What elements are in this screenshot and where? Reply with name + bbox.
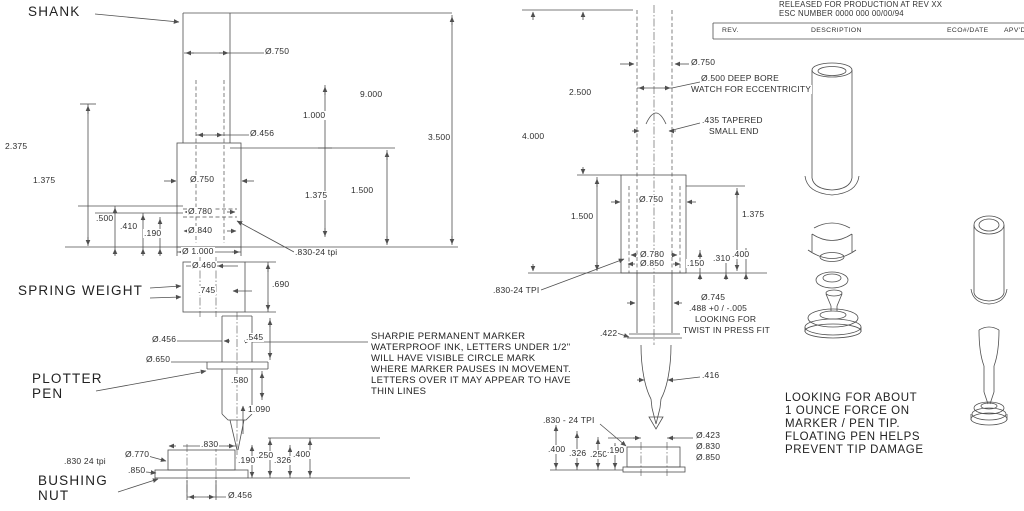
- sharpie-note-line6: THIN LINES: [371, 387, 426, 397]
- force-note-line1: LOOKING FOR ABOUT: [785, 392, 917, 405]
- release-note: RELEASED FOR PRODUCTION AT REV XX: [779, 0, 942, 9]
- dim-overall-9000: 9.000: [359, 90, 383, 99]
- mv-dim-745: Ø.745: [700, 293, 726, 302]
- mv-dim-150: .150: [686, 259, 705, 268]
- dim-bn-400: .400: [292, 450, 311, 459]
- dim-840: Ø.840: [187, 226, 213, 235]
- col-header-rev: REV.: [722, 27, 739, 34]
- dim-1090: 1.090: [247, 405, 271, 414]
- dim-bn-190: .190: [237, 456, 256, 465]
- dim-bn-850: .850: [127, 466, 146, 475]
- mv-dim-190b: .190: [606, 446, 625, 455]
- col-header-apvd: APV'D: [1004, 27, 1024, 34]
- mv-dim-423: Ø.423: [695, 431, 721, 440]
- mv-dim-400b: .400: [547, 445, 566, 454]
- thread-callout-shank: .830-24 tpi: [294, 248, 338, 257]
- mv-bore-note-line1: Ø.500 DEEP BORE: [700, 74, 780, 83]
- dim-780: Ø.780: [187, 207, 213, 216]
- spring-weight-label: SPRING WEIGHT: [18, 283, 143, 298]
- dim-750-mid: Ø.750: [189, 175, 215, 184]
- mv-thread-callout: .830-24 TPI: [492, 286, 540, 295]
- dim-2375: 2.375: [4, 142, 28, 151]
- left-view-linework: [65, 13, 458, 500]
- mv-dim-422: .422: [599, 329, 618, 338]
- mv-dim-850b: Ø.850: [695, 453, 721, 462]
- dim-745: .745: [197, 286, 216, 295]
- plotter-pen-label-line1: PLOTTER: [32, 371, 103, 386]
- esc-number: ESC NUMBER 0000 000 00/00/94: [779, 9, 904, 18]
- sharpie-note-line5: LETTERS OVER IT MAY APPEAR TO HAVE: [371, 376, 571, 386]
- dim-460: Ø.460: [191, 261, 217, 270]
- assembled-view: [971, 216, 1007, 425]
- mv-tol-488: .488 +0 / -.005: [688, 304, 748, 313]
- dim-3500: 3.500: [427, 133, 451, 142]
- mv-dim-310: .310: [712, 254, 731, 263]
- dim-bn-456: Ø.456: [227, 491, 253, 500]
- mv-dim-2500: 2.500: [568, 88, 592, 97]
- exploded-view: [805, 63, 861, 338]
- dim-shank-bore: Ø.456: [249, 129, 275, 138]
- force-note-line4: FLOATING PEN HELPS: [785, 431, 920, 444]
- mv-bore-note-line2: WATCH FOR ECCENTRICITY: [690, 85, 812, 94]
- col-header-eco-date: ECO#/DATE: [947, 27, 989, 34]
- force-note-line2: 1 OUNCE FORCE ON: [785, 405, 910, 418]
- mv-thread-callout-bottom: .830 - 24 TPI: [542, 416, 596, 425]
- dim-shank-od: Ø.750: [264, 47, 290, 56]
- dim-1375-right: 1.375: [304, 191, 328, 200]
- mv-taper-note-line2: SMALL END: [708, 127, 760, 136]
- dim-500: .500: [95, 214, 114, 223]
- mv-dim-850: Ø.850: [639, 259, 665, 268]
- dim-bn-250: .250: [255, 451, 274, 460]
- sharpie-note-line3: WILL HAVE VISIBLE CIRCLE MARK: [371, 354, 535, 364]
- mv-taper-note-line1: .435 TAPERED: [701, 116, 764, 125]
- dim-190: .190: [143, 229, 162, 238]
- shank-label: SHANK: [28, 4, 81, 19]
- thread-callout-bushing: .830 24 tpi: [63, 457, 107, 466]
- mv-dim-1500: 1.500: [570, 212, 594, 221]
- dim-545: .545: [245, 333, 264, 342]
- dim-bn-830: .830: [200, 440, 219, 449]
- mv-dim-326b: .326: [568, 449, 587, 458]
- mv-dim-416: .416: [701, 371, 720, 380]
- dim-1375-left: 1.375: [32, 176, 56, 185]
- dim-650: Ø.650: [145, 355, 171, 364]
- plotter-pen-label-line2: PEN: [32, 386, 63, 401]
- col-header-description: DESCRIPTION: [811, 27, 862, 34]
- force-note-line5: PREVENT TIP DAMAGE: [785, 444, 924, 457]
- engineering-drawing-sheet: SHANK SPRING WEIGHT PLOTTER PEN BUSHING …: [0, 0, 1024, 511]
- dim-410: .410: [119, 222, 138, 231]
- sharpie-note-line2: WATERPROOF INK, LETTERS UNDER 1/2": [371, 343, 570, 353]
- mv-press-note-line1: LOOKING FOR: [694, 315, 757, 324]
- mv-dim-400: .400: [731, 250, 750, 259]
- dim-580: .580: [230, 376, 249, 385]
- dim-690: .690: [271, 280, 290, 289]
- mv-dim-830: Ø.830: [695, 442, 721, 451]
- dim-1500: 1.500: [350, 186, 374, 195]
- sharpie-note-line1: SHARPIE PERMANENT MARKER: [371, 332, 525, 342]
- bushing-nut-label-line2: NUT: [38, 488, 69, 503]
- dim-456-pen: Ø.456: [151, 335, 177, 344]
- dim-1000-dia: Ø 1.000: [181, 247, 215, 256]
- dim-1000: 1.000: [302, 111, 326, 120]
- sharpie-note-line4: WHERE MARKER PAUSES IN MOVEMENT.: [371, 365, 571, 375]
- dim-bn-770: Ø.770: [124, 450, 150, 459]
- mv-dim-1375: 1.375: [741, 210, 765, 219]
- mv-dim-750-top: Ø.750: [690, 58, 716, 67]
- mv-dim-4000: 4.000: [521, 132, 545, 141]
- mv-dim-750-mid: Ø.750: [638, 195, 664, 204]
- bushing-nut-label-line1: BUSHING: [38, 473, 108, 488]
- dim-bn-326: .326: [273, 456, 292, 465]
- force-note-line3: MARKER / PEN TIP.: [785, 418, 900, 431]
- mv-press-note-line2: TWIST IN PRESS FIT: [682, 326, 771, 335]
